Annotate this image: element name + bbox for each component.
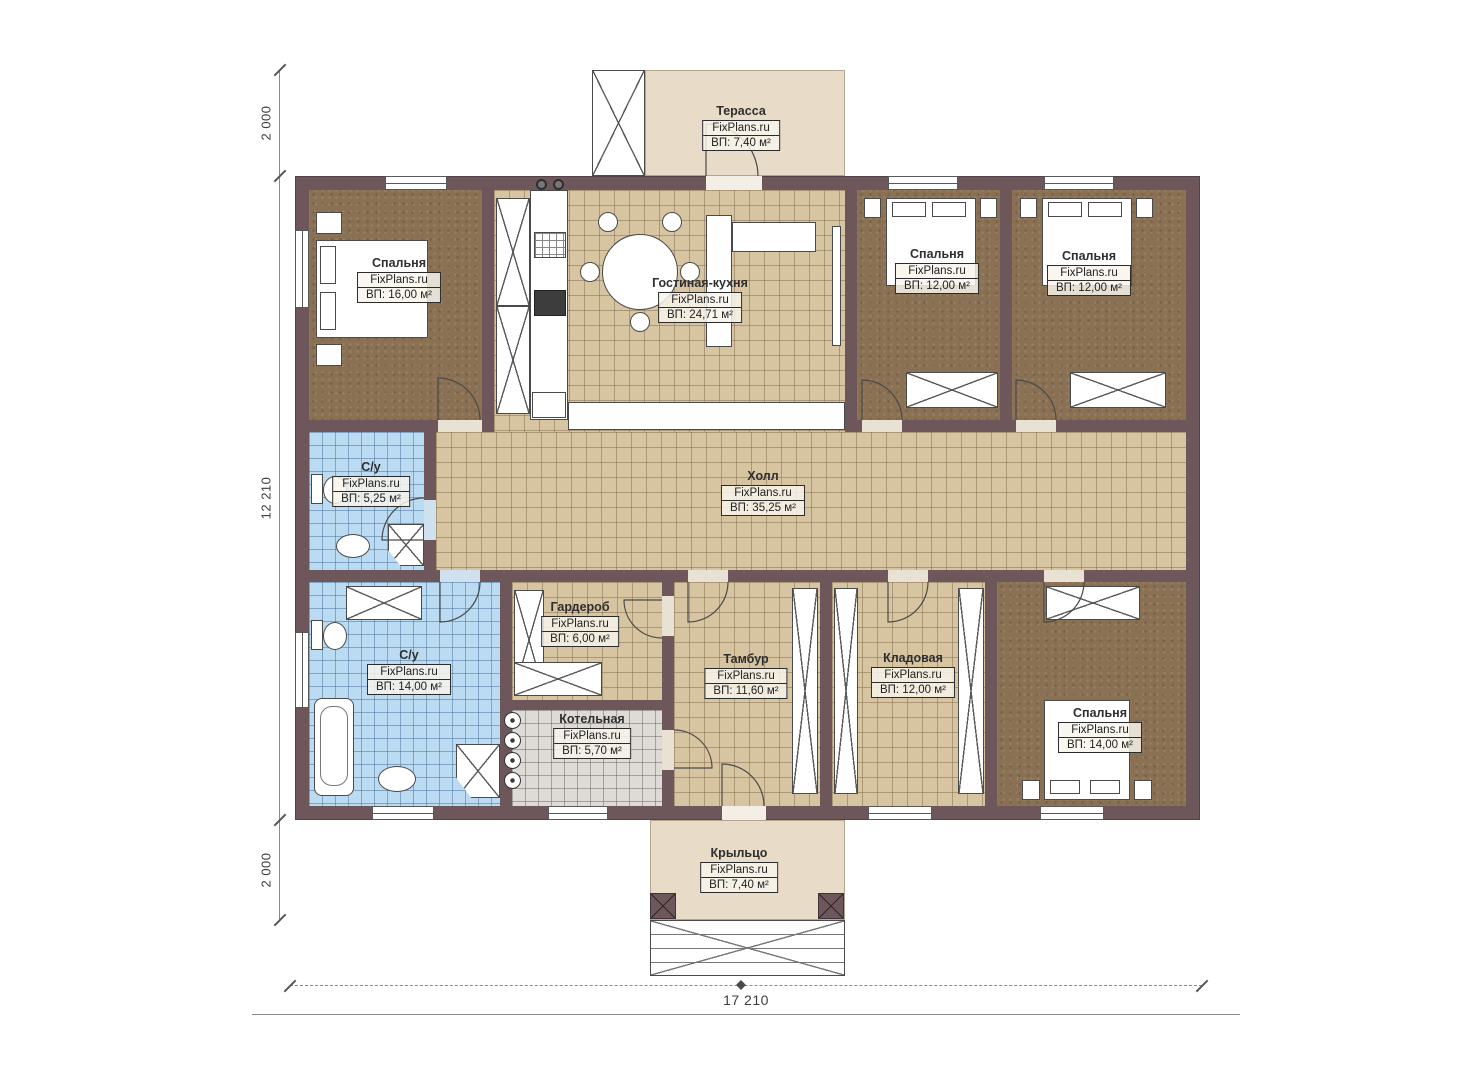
area-label: ВП: 14,00 м² <box>368 679 450 694</box>
area-label: ВП: 5,70 м² <box>554 743 630 758</box>
area-label: ВП: 6,00 м² <box>542 631 618 646</box>
door-arcs <box>0 0 1473 1080</box>
area-label: ВП: 7,40 м² <box>701 877 777 892</box>
room-label-bath-top: С/у FixPlans.ruВП: 5,25 м² <box>332 460 410 507</box>
brand-label: FixPlans.ru <box>703 121 779 135</box>
area-label: ВП: 35,25 м² <box>722 500 804 515</box>
room-label-vestibule: Тамбур FixPlans.ruВП: 11,60 м² <box>704 652 787 699</box>
room-label-terrace: Терасса FixPlans.ruВП: 7,40 м² <box>702 104 780 151</box>
brand-label: FixPlans.ru <box>333 477 409 491</box>
room-label-hall: Холл FixPlans.ruВП: 35,25 м² <box>721 469 805 516</box>
brand-label: FixPlans.ru <box>896 264 978 278</box>
area-label: ВП: 7,40 м² <box>703 135 779 150</box>
brand-label: FixPlans.ru <box>1048 266 1130 280</box>
area-label: ВП: 12,00 м² <box>1048 280 1130 295</box>
brand-label: FixPlans.ru <box>722 486 804 500</box>
area-label: ВП: 16,00 м² <box>358 287 440 302</box>
floor-plan-canvas: Терасса FixPlans.ruВП: 7,40 м² Спальня F… <box>0 0 1473 1080</box>
room-label-bedroom2: Спальня FixPlans.ruВП: 12,00 м² <box>895 247 979 294</box>
area-label: ВП: 11,60 м² <box>705 683 786 698</box>
room-label-porch: Крыльцо FixPlans.ruВП: 7,40 м² <box>700 846 778 893</box>
room-label-storage: Кладовая FixPlans.ruВП: 12,00 м² <box>871 651 955 698</box>
brand-label: FixPlans.ru <box>358 273 440 287</box>
room-label-wardrobe: Гардероб FixPlans.ruВП: 6,00 м² <box>541 600 619 647</box>
brand-label: FixPlans.ru <box>659 293 741 307</box>
room-label-bedroom3: Спальня FixPlans.ruВП: 12,00 м² <box>1047 249 1131 296</box>
room-label-bath-bottom: С/у FixPlans.ruВП: 14,00 м² <box>367 648 451 695</box>
room-label-bedroom4: Спальня FixPlans.ruВП: 14,00 м² <box>1058 706 1142 753</box>
area-label: ВП: 14,00 м² <box>1059 737 1141 752</box>
brand-label: FixPlans.ru <box>1059 723 1141 737</box>
brand-label: FixPlans.ru <box>701 863 777 877</box>
room-label-boiler: Котельная FixPlans.ruВП: 5,70 м² <box>553 712 631 759</box>
brand-label: FixPlans.ru <box>368 665 450 679</box>
room-label-bedroom1: Спальня FixPlans.ruВП: 16,00 м² <box>357 256 441 303</box>
brand-label: FixPlans.ru <box>542 617 618 631</box>
room-label-kitchen: Гостиная-кухня FixPlans.ruВП: 24,71 м² <box>652 276 748 323</box>
area-label: ВП: 12,00 м² <box>872 682 954 697</box>
brand-label: FixPlans.ru <box>872 668 954 682</box>
area-label: ВП: 24,71 м² <box>659 307 741 322</box>
area-label: ВП: 12,00 м² <box>896 278 978 293</box>
brand-label: FixPlans.ru <box>705 669 786 683</box>
brand-label: FixPlans.ru <box>554 729 630 743</box>
area-label: ВП: 5,25 м² <box>333 491 409 506</box>
